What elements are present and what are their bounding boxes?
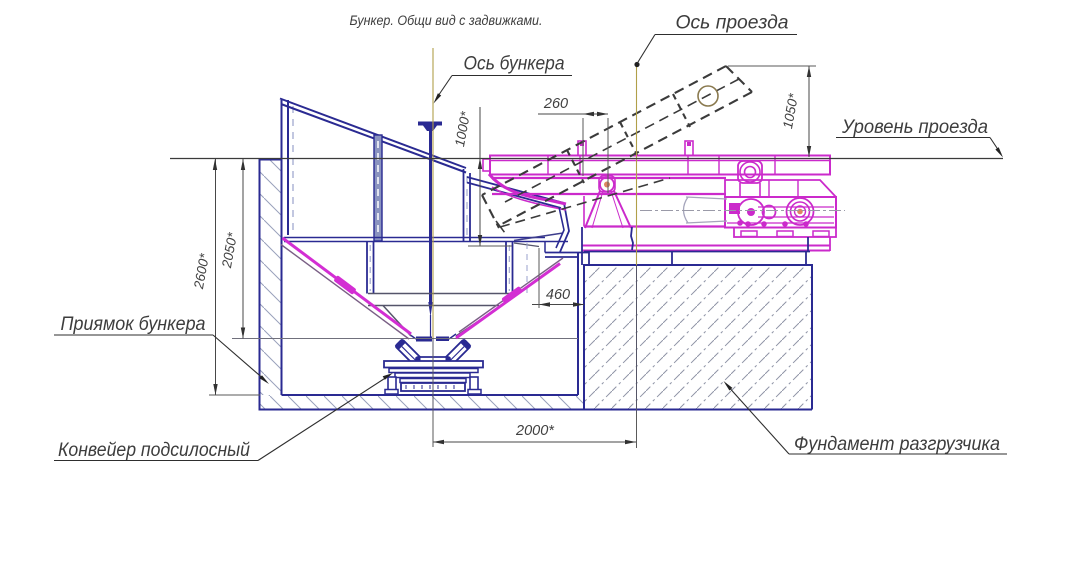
svg-text:Приямок бункера: Приямок бункера xyxy=(61,313,206,335)
svg-text:Бункер. Общи вид с задвижками.: Бункер. Общи вид с задвижками. xyxy=(350,13,543,28)
svg-text:2000*: 2000* xyxy=(515,423,555,439)
svg-text:260: 260 xyxy=(543,96,568,112)
svg-text:Конвейер подсилосный: Конвейер подсилосный xyxy=(58,439,250,461)
svg-text:460: 460 xyxy=(546,287,570,303)
svg-text:Ось бункера: Ось бункера xyxy=(464,53,565,75)
svg-text:Ось проезда: Ось проезда xyxy=(676,12,789,34)
svg-text:Фундамент разгрузчика: Фундамент разгрузчика xyxy=(794,433,1000,455)
svg-text:Уровень проезда: Уровень проезда xyxy=(841,116,988,138)
